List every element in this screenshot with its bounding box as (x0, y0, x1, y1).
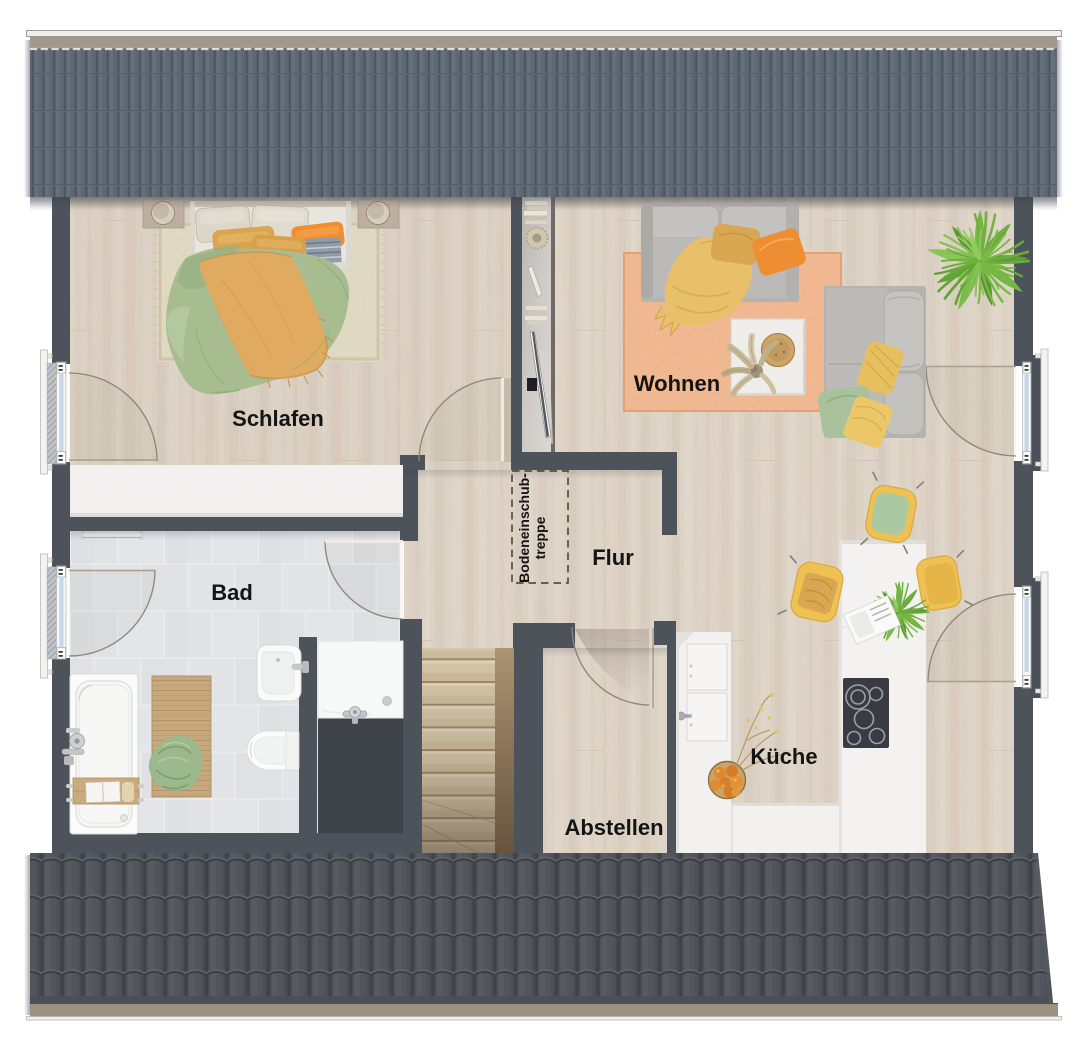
svg-text:Küche: Küche (750, 744, 817, 769)
svg-text:Abstellen: Abstellen (564, 815, 663, 840)
svg-text:Wohnen: Wohnen (634, 371, 720, 396)
svg-text:treppe: treppe (532, 516, 548, 559)
svg-text:Flur: Flur (592, 545, 634, 570)
svg-text:Bad: Bad (211, 580, 253, 605)
svg-text:Schlafen: Schlafen (232, 406, 324, 431)
svg-text:Bodeneinschub-: Bodeneinschub- (516, 473, 532, 583)
